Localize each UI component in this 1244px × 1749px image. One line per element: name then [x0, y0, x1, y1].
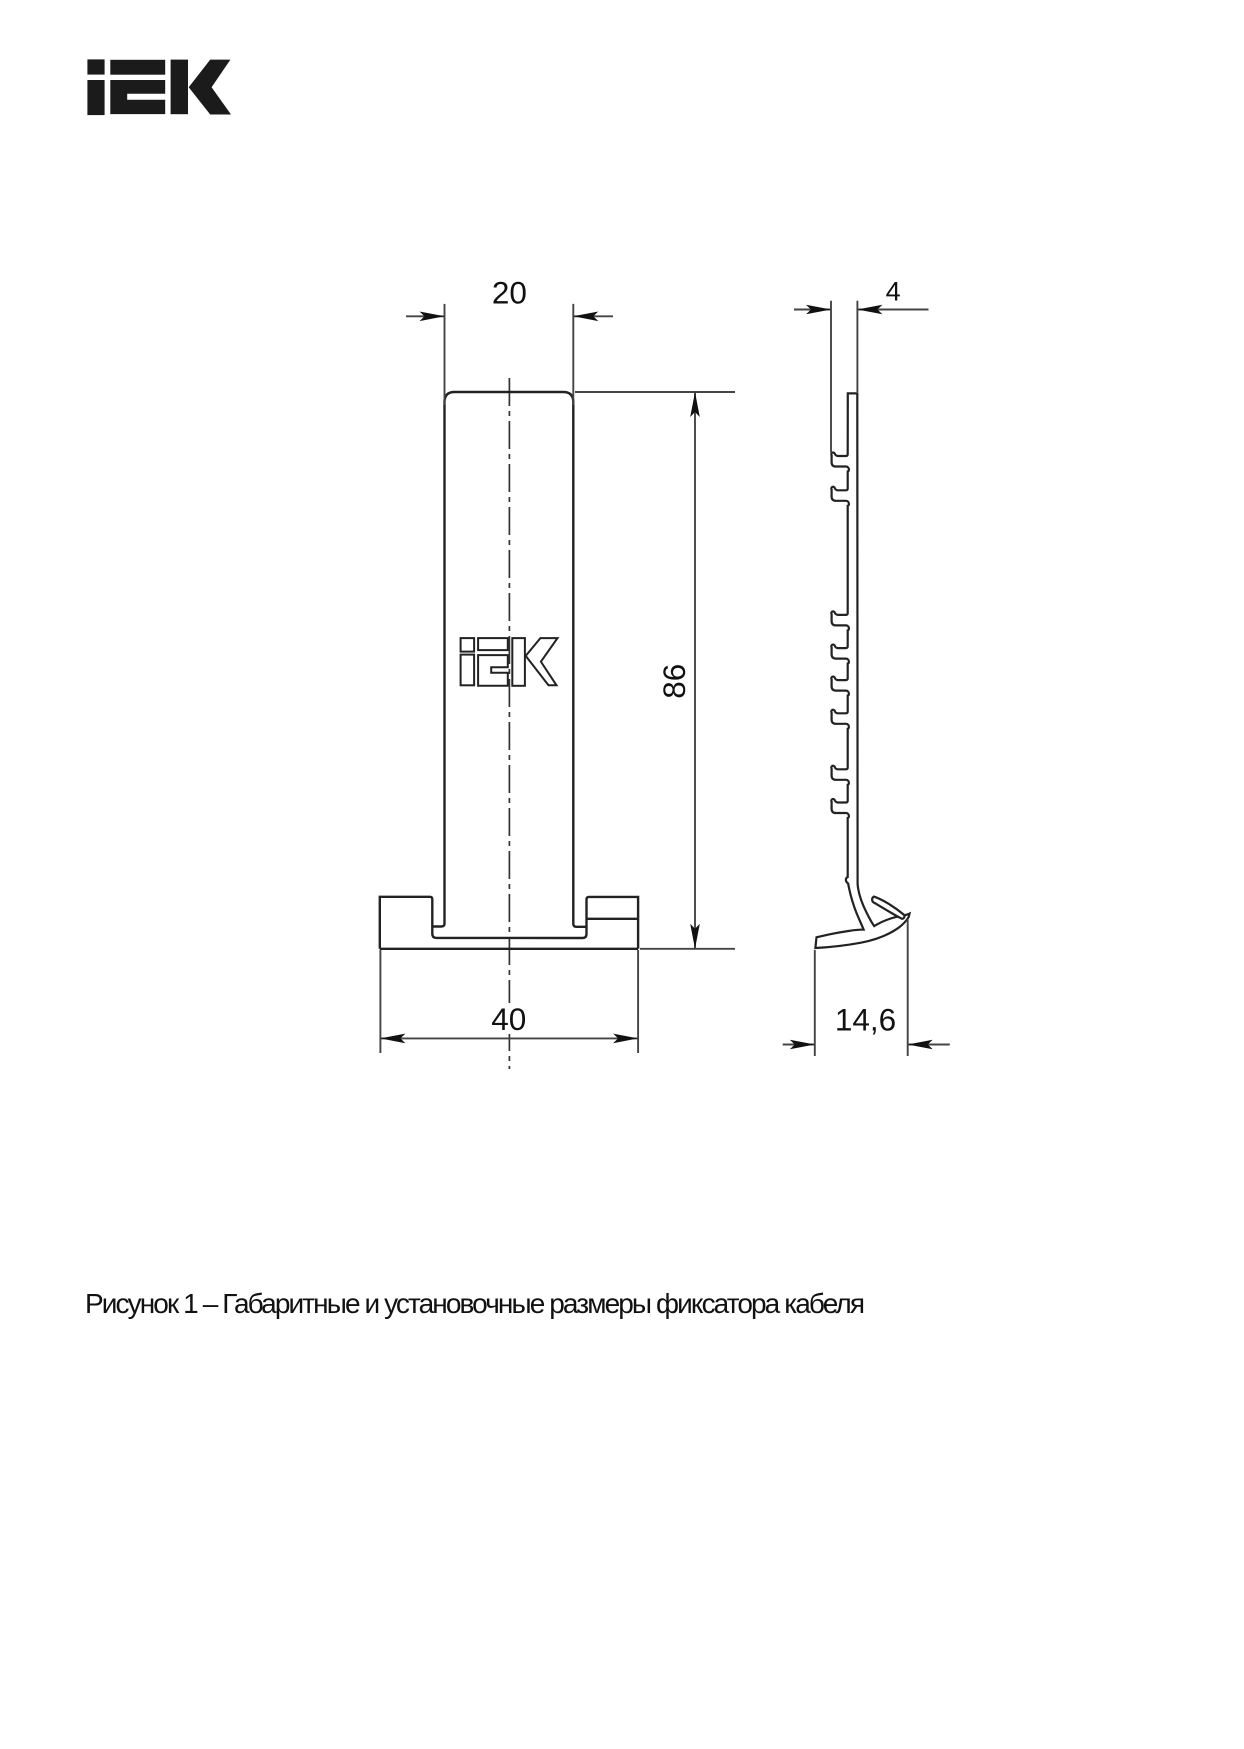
svg-text:20: 20 — [492, 275, 527, 311]
svg-text:4: 4 — [886, 277, 901, 307]
svg-text:14,6: 14,6 — [835, 1002, 896, 1038]
svg-text:86: 86 — [656, 664, 692, 699]
svg-text:40: 40 — [491, 1001, 526, 1037]
svg-text:Рисунок 1 – Габаритные и устан: Рисунок 1 – Габаритные и установочные ра… — [85, 1288, 864, 1319]
